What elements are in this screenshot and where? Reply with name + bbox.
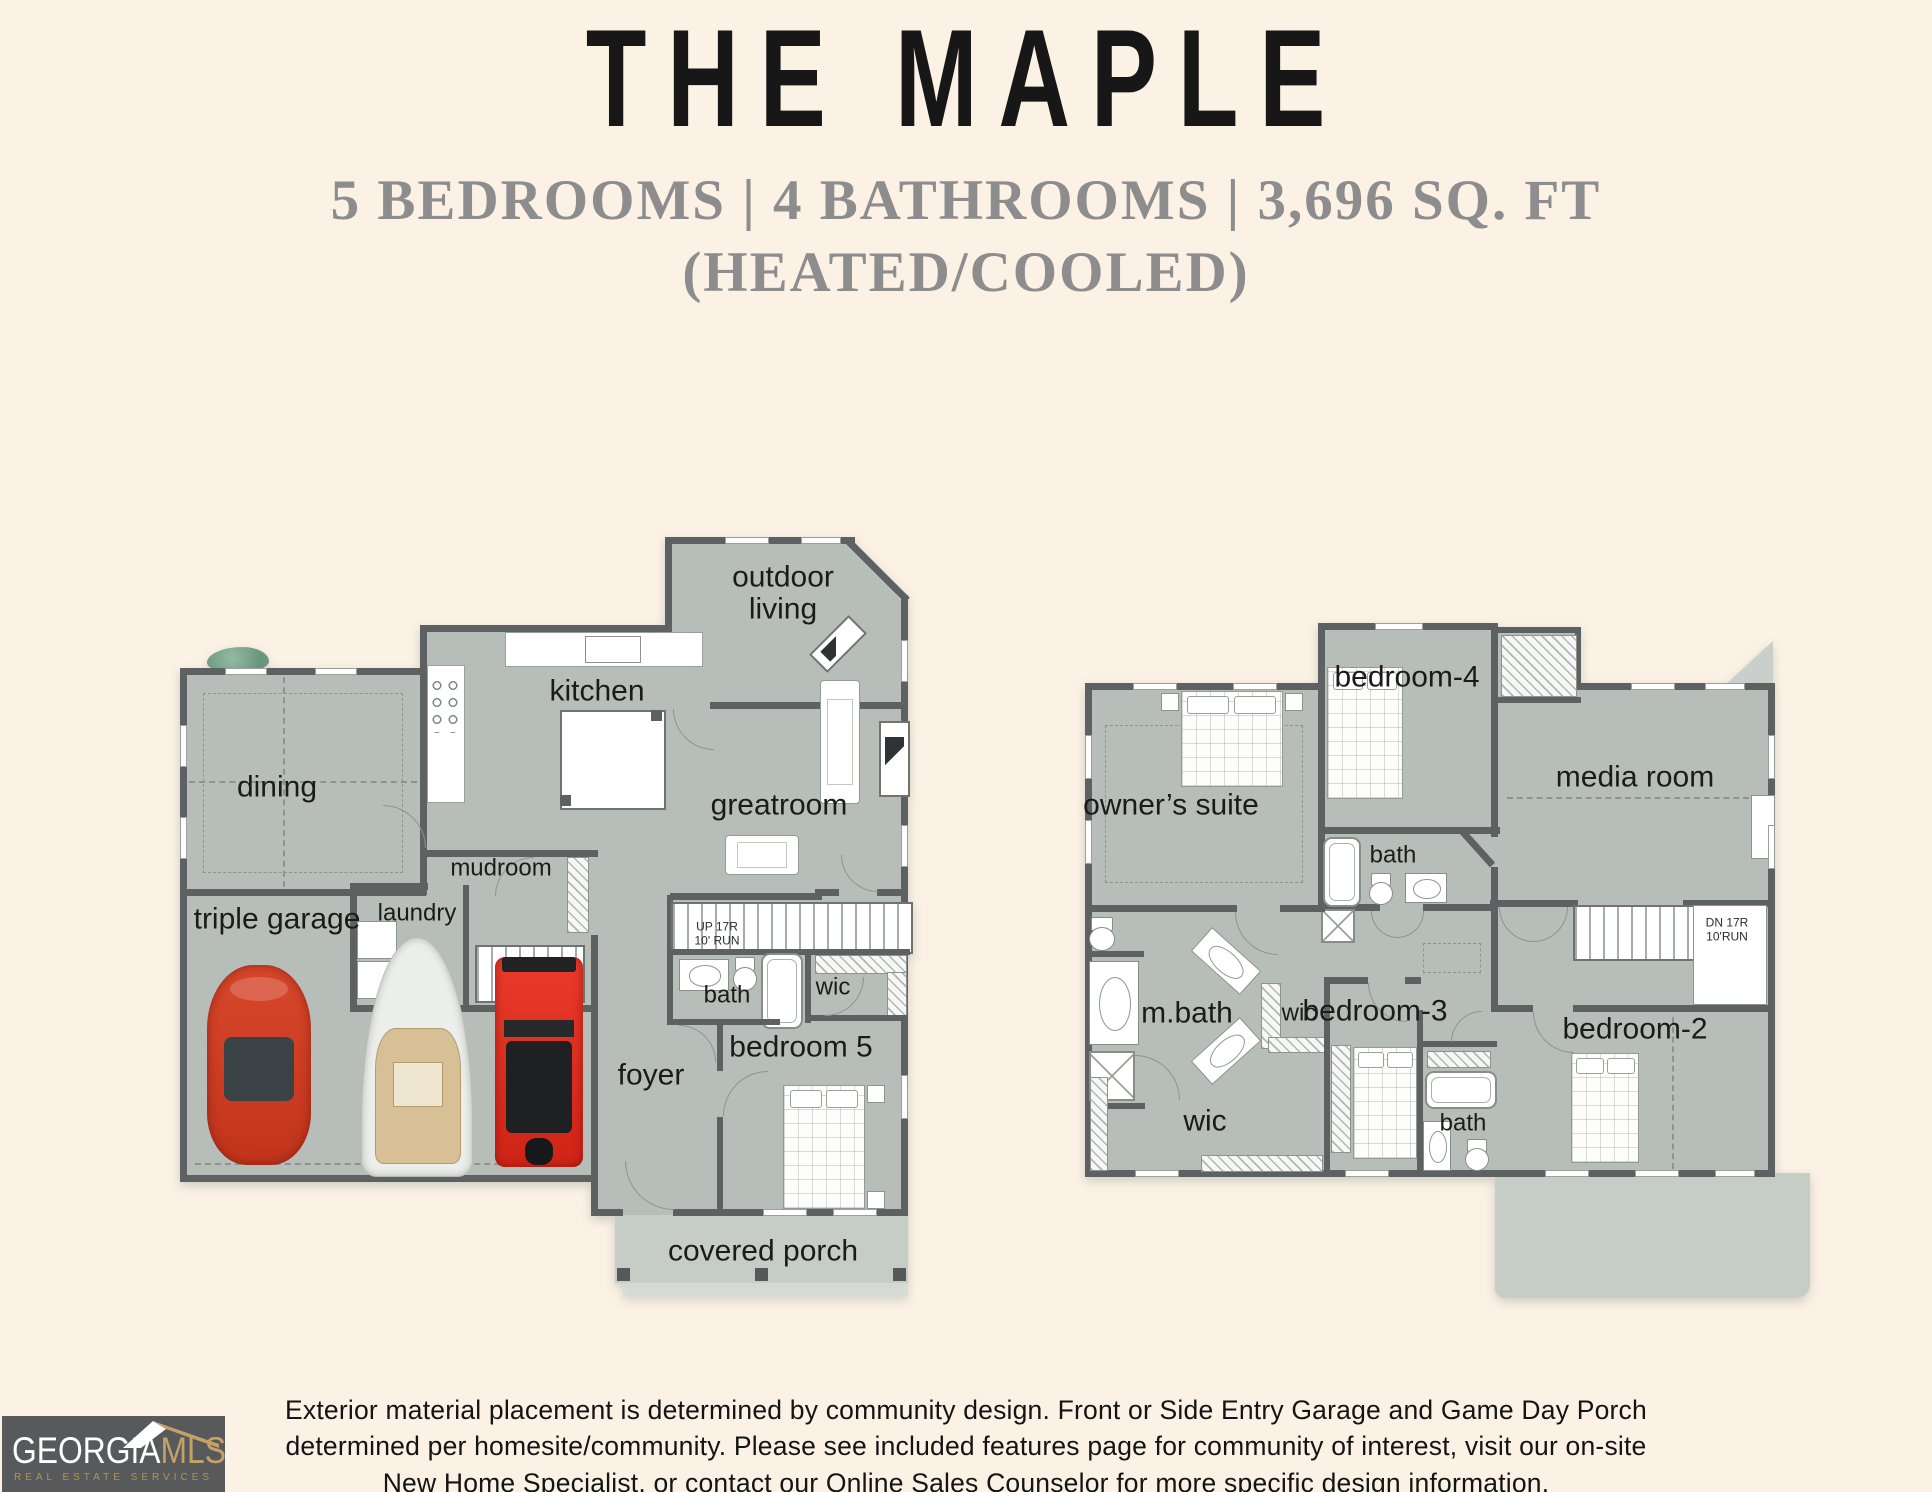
wall: [815, 889, 839, 896]
window: [1715, 1170, 1755, 1177]
wall: [1092, 951, 1144, 957]
window: [1705, 683, 1745, 690]
wall: [805, 953, 811, 1023]
wall: [1575, 683, 1775, 690]
wall: [717, 1117, 723, 1215]
bath-sink-icon: [1405, 873, 1447, 903]
disclaimer-line: New Home Specialist, or contact our Onli…: [236, 1465, 1696, 1492]
stove-icon: [429, 677, 461, 733]
window: [833, 1209, 877, 1216]
stairs-label-line2: 10'RUN: [1706, 931, 1748, 944]
window: [1085, 735, 1092, 779]
roof-corner: [1723, 641, 1773, 687]
window: [725, 537, 769, 544]
sofa-icon: [820, 680, 860, 804]
fireplace-icon: [879, 721, 910, 797]
porch-post: [617, 1268, 630, 1281]
wall: [1491, 697, 1581, 703]
wall: [180, 668, 426, 675]
wic-shelves: [1268, 1037, 1328, 1053]
window: [801, 537, 841, 544]
wall: [463, 885, 469, 1011]
wall: [420, 625, 670, 632]
logo-brand-text: GEORGIA: [12, 1430, 161, 1471]
wall: [180, 889, 426, 896]
room-label-foyer: foyer: [618, 1059, 685, 1091]
floor-plan-first-floor: UP 17R 10' RUN: [165, 425, 910, 1305]
window: [1768, 825, 1775, 869]
window: [1631, 683, 1675, 690]
bed-icon: [1571, 1053, 1639, 1163]
stairs-label-line1: DN 17R: [1706, 917, 1749, 930]
window: [901, 825, 908, 867]
room-label-owners-suite: owner’s suite: [1083, 789, 1259, 821]
room-label-dining: dining: [237, 771, 317, 803]
stairs-label-line2: 10' RUN: [695, 935, 740, 948]
room-label-laundry: laundry: [378, 900, 457, 925]
window: [901, 640, 908, 682]
media-ceiling-line: [1507, 797, 1759, 799]
porch-post: [893, 1268, 906, 1281]
wall: [1491, 687, 1498, 837]
wall: [180, 668, 187, 896]
window: [1345, 1170, 1389, 1177]
logo-tagline: REAL ESTATE SERVICES: [2, 1472, 225, 1483]
subtitle-specs: 5 BEDROOMS | 4 BATHROOMS | 3,696 SQ. FT: [0, 168, 1932, 233]
wic-shelves: [1090, 1077, 1108, 1171]
bathtub-icon: [1425, 1071, 1497, 1109]
window: [1085, 820, 1092, 864]
wall: [1490, 900, 1578, 907]
room-label-wic: wic: [816, 974, 851, 999]
wall: [1280, 905, 1325, 912]
room-label-greatroom: greatroom: [711, 789, 848, 821]
wall: [350, 883, 428, 890]
toilet-icon: [1089, 917, 1113, 949]
wall: [1318, 623, 1325, 855]
window: [315, 668, 357, 675]
sports-car-icon: [207, 965, 311, 1165]
bed-icon: [1353, 1047, 1417, 1159]
wall: [670, 893, 822, 900]
window: [1375, 623, 1423, 630]
window: [763, 1209, 807, 1216]
room-label-media-room: media room: [1556, 761, 1714, 793]
kitchen-sink-icon: [585, 636, 641, 663]
closet-shelves: [1331, 1045, 1351, 1153]
disclaimer-text: Exterior material placement is determine…: [236, 1392, 1696, 1492]
window: [1768, 735, 1775, 779]
wall: [1318, 827, 1500, 834]
wall: [1423, 904, 1498, 911]
window: [180, 725, 187, 767]
window: [1545, 1170, 1589, 1177]
room-label-wic-lower: wic: [1183, 1105, 1226, 1137]
garden-tub-icon: [1089, 961, 1139, 1045]
nightstand-icon: [867, 1085, 885, 1103]
wic-shelves: [1201, 1155, 1323, 1172]
attic-access-line: [1423, 943, 1481, 973]
nightstand-icon: [867, 1191, 885, 1209]
closet-shelves: [1501, 635, 1577, 697]
room-label-kitchen: kitchen: [549, 675, 644, 707]
wall: [665, 537, 672, 632]
wall: [717, 1019, 723, 1071]
wall: [1328, 977, 1368, 984]
toilet-icon: [1465, 1139, 1487, 1169]
loveseat-icon: [725, 835, 799, 875]
room-label-mudroom: mudroom: [450, 855, 551, 880]
window: [225, 668, 267, 675]
window: [1133, 683, 1177, 690]
shower-icon: [1321, 909, 1355, 943]
room-label-bedroom2: bedroom-2: [1562, 1013, 1707, 1045]
subtitle-heated-cooled: (HEATED/COOLED): [0, 240, 1932, 305]
wall: [180, 889, 187, 1182]
room-label-outdoor-living: outdoor living: [708, 562, 858, 625]
logo-accent-text: MLS: [161, 1430, 226, 1471]
georgia-mls-logo: GEORGIAMLS REAL ESTATE SERVICES: [2, 1416, 225, 1492]
wall: [1573, 1005, 1775, 1012]
room-label-bath-upper: bath: [1370, 842, 1417, 867]
kitchen-island: [560, 710, 666, 810]
linen-shelves: [1427, 1051, 1491, 1068]
coat-closet-shelves: [567, 857, 589, 933]
bed-icon: [1181, 691, 1283, 787]
bathtub-icon: [761, 953, 803, 1029]
stairs-label-line1: UP 17R: [696, 921, 738, 934]
room-label-bath-lower: bath: [1440, 1110, 1487, 1135]
room-label-mbath: m.bath: [1141, 997, 1233, 1029]
room-label-bedroom3: bedroom-3: [1302, 995, 1447, 1027]
porch-steps: [623, 1283, 908, 1297]
washer-icon: [357, 921, 397, 959]
wall: [1085, 905, 1237, 912]
wall: [877, 889, 908, 896]
floor-plan-second-floor: DN 17R 10'RUN: [1075, 615, 1820, 1325]
wall: [591, 1209, 623, 1216]
room-label-bedroom4: bedroom-4: [1334, 661, 1479, 693]
wall: [670, 1019, 780, 1025]
nightstand-icon: [1161, 693, 1179, 711]
toilet-icon: [1369, 873, 1391, 903]
disclaimer-line: Exterior material placement is determine…: [236, 1392, 1696, 1428]
flyer-canvas: THE MAPLE 5 BEDROOMS | 4 BATHROOMS | 3,6…: [0, 0, 1932, 1492]
jeep-icon: [495, 957, 583, 1167]
window: [1233, 683, 1277, 690]
wic-shelves: [887, 972, 907, 1020]
roof-below-fill: [1495, 1173, 1810, 1298]
porch-post: [755, 1268, 768, 1281]
wall: [1085, 683, 1325, 690]
page-title: THE MAPLE: [193, 0, 1739, 159]
room-label-bath: bath: [704, 982, 751, 1007]
window: [1135, 1170, 1179, 1177]
wall: [1491, 907, 1498, 1012]
room-label-triple-garage: triple garage: [194, 903, 361, 935]
wall: [710, 702, 908, 709]
wall: [1495, 627, 1581, 633]
wall: [1405, 977, 1421, 984]
nightstand-icon: [1285, 693, 1303, 711]
logo-wordmark: GEORGIAMLS: [12, 1430, 226, 1472]
room-label-bedroom5: bedroom 5: [729, 1031, 872, 1063]
island-corner: [651, 710, 662, 721]
disclaimer-line: determined per homesite/community. Pleas…: [236, 1428, 1696, 1464]
staircase-down: [1573, 905, 1699, 961]
bathtub-icon: [1323, 837, 1361, 907]
wall: [591, 935, 598, 1215]
bed-icon: [783, 1085, 865, 1209]
room-label-covered-porch: covered porch: [668, 1235, 858, 1267]
island-corner: [560, 795, 571, 806]
window: [901, 1075, 908, 1119]
window: [1635, 1170, 1679, 1177]
window: [180, 817, 187, 859]
